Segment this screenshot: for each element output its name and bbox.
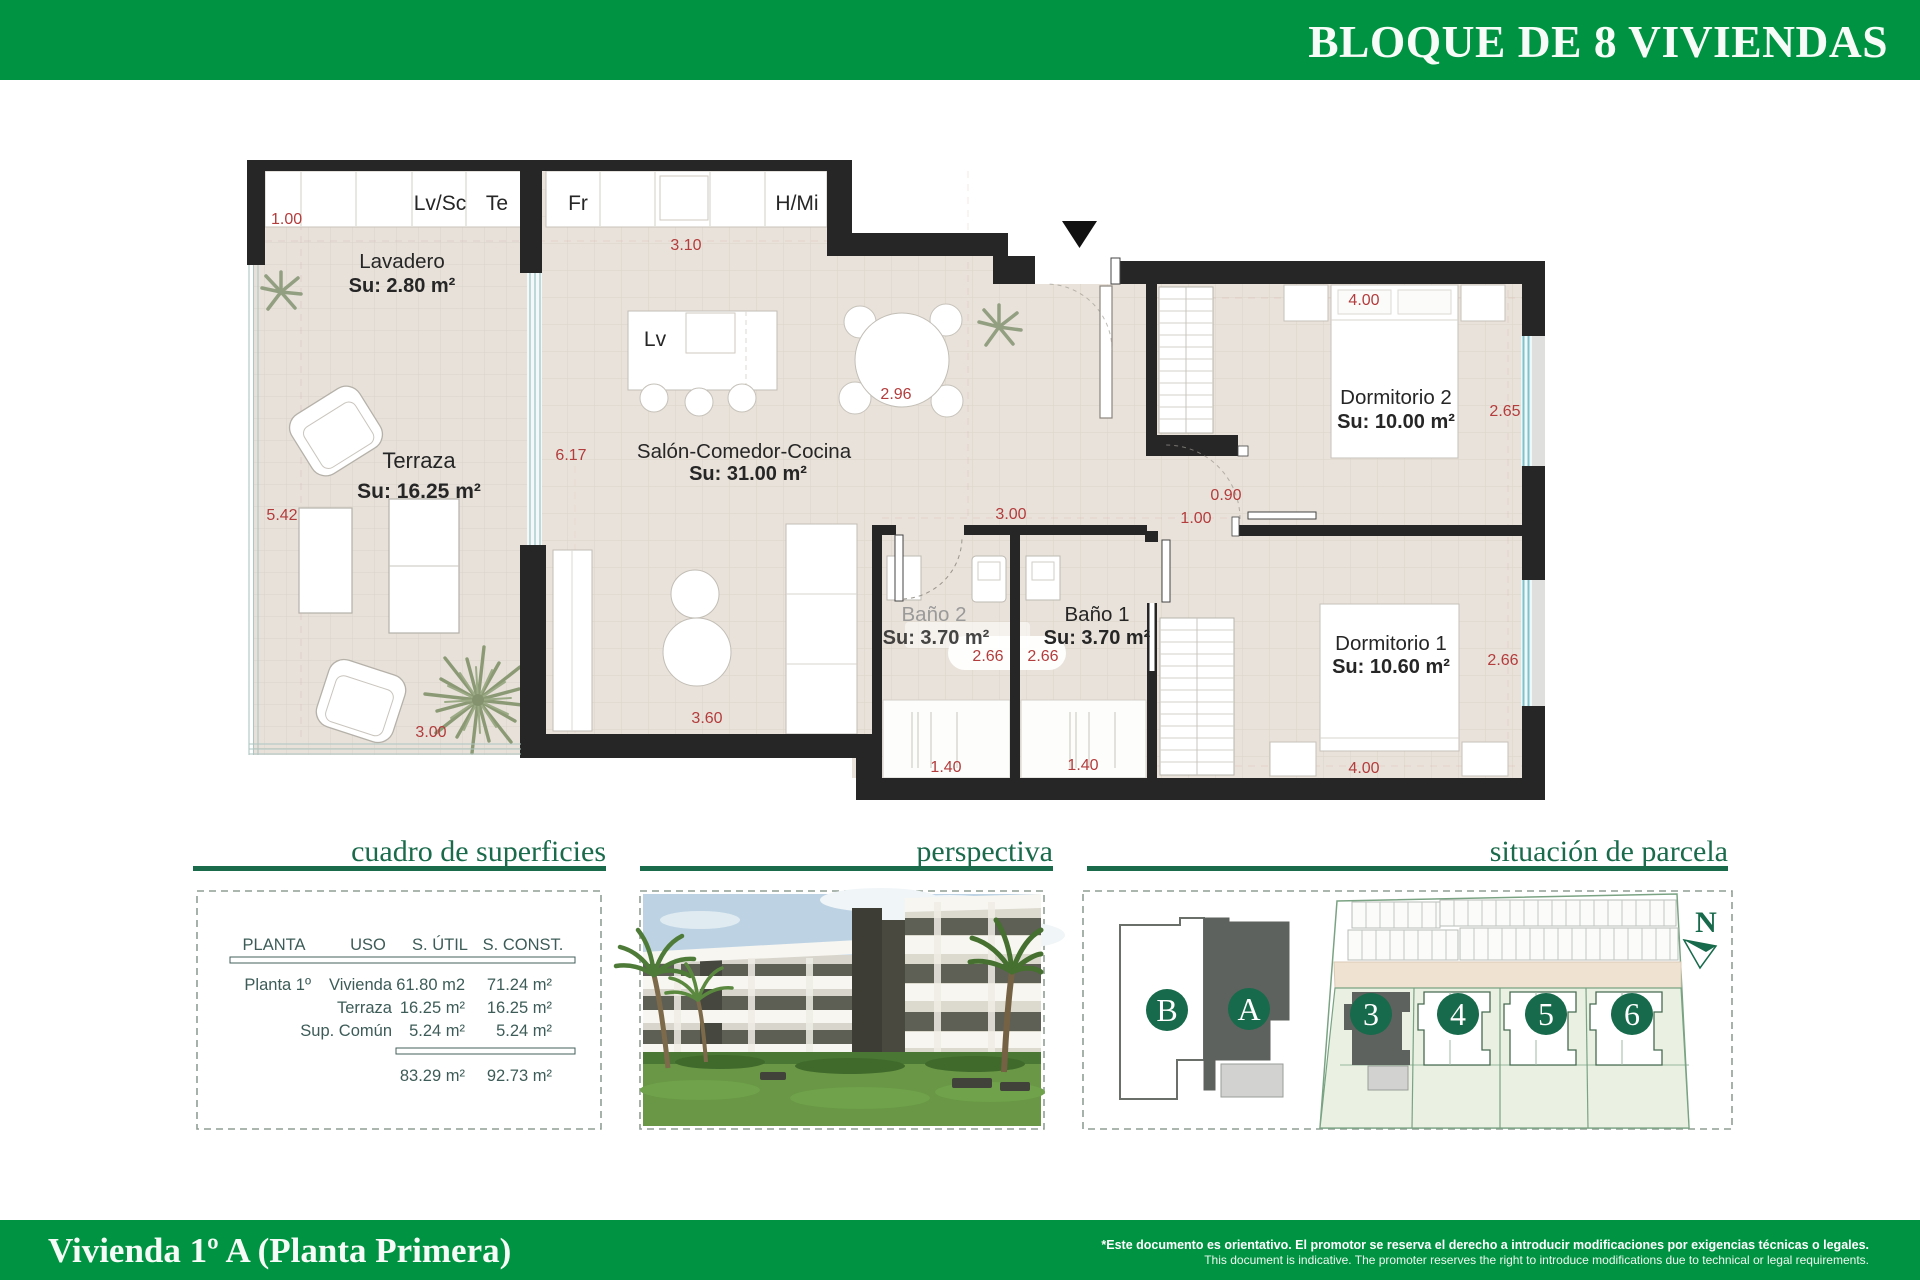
svg-text:Su: 2.80 m²: Su: 2.80 m² [349,275,456,297]
svg-text:2.96: 2.96 [880,386,911,403]
svg-text:1.40: 1.40 [1067,757,1098,774]
svg-text:USO: USO [350,936,386,954]
svg-text:71.24 m²: 71.24 m² [487,976,553,994]
svg-text:H/Mi: H/Mi [775,192,818,215]
svg-text:perspectiva: perspectiva [916,835,1053,868]
svg-text:S. CONST.: S. CONST. [483,936,564,954]
svg-text:Planta 1º: Planta 1º [244,976,311,994]
svg-text:6: 6 [1624,996,1640,1032]
svg-text:61.80 m2: 61.80 m2 [396,976,465,994]
svg-text:4.00: 4.00 [1348,760,1379,777]
svg-text:Dormitorio 2: Dormitorio 2 [1340,386,1452,409]
svg-text:Terraza: Terraza [382,448,456,473]
svg-text:Su: 31.00 m²: Su: 31.00 m² [689,463,807,485]
svg-text:5.24 m²: 5.24 m² [496,1022,552,1040]
svg-text:Baño 2: Baño 2 [902,603,967,626]
svg-text:1.00: 1.00 [1180,510,1211,527]
svg-text:Dormitorio 1: Dormitorio 1 [1335,632,1447,655]
svg-text:B: B [1156,992,1177,1028]
svg-text:Vivienda 1º A (Planta Primera): Vivienda 1º A (Planta Primera) [48,1231,511,1270]
svg-text:S. ÚTIL: S. ÚTIL [412,935,468,954]
svg-text:Sup. Común: Sup. Común [300,1022,392,1040]
svg-text:situación de parcela: situación de parcela [1490,835,1728,868]
svg-text:3: 3 [1363,996,1379,1032]
svg-text:cuadro de superficies: cuadro de superficies [351,835,606,868]
svg-text:Su: 16.25 m²: Su: 16.25 m² [357,480,481,503]
svg-text:1.40: 1.40 [930,759,961,776]
svg-text:This document is indicative. T: This document is indicative. The promote… [1204,1253,1869,1267]
svg-text:Su: 10.60 m²: Su: 10.60 m² [1332,656,1450,678]
svg-text:Fr: Fr [568,192,588,215]
svg-text:6.17: 6.17 [555,447,586,464]
svg-text:Lavadero: Lavadero [359,250,444,273]
svg-text:3.60: 3.60 [691,710,722,727]
svg-text:Te: Te [486,192,508,215]
svg-text:N: N [1695,906,1717,939]
svg-text:Su: 3.70 m²: Su: 3.70 m² [1044,627,1151,649]
svg-text:4.00: 4.00 [1348,292,1379,309]
svg-text:2.66: 2.66 [1487,652,1518,669]
svg-text:5.42: 5.42 [266,507,297,524]
svg-text:1.00: 1.00 [271,211,302,228]
svg-text:Baño 1: Baño 1 [1065,603,1130,626]
svg-text:3.00: 3.00 [995,506,1026,523]
svg-text:0.90: 0.90 [1210,487,1241,504]
svg-text:Lv: Lv [644,328,667,351]
svg-text:PLANTA: PLANTA [243,936,306,954]
svg-text:Su: 10.00 m²: Su: 10.00 m² [1337,411,1455,433]
svg-text:2.65: 2.65 [1489,403,1520,420]
svg-text:3.00: 3.00 [415,724,446,741]
svg-text:Salón-Comedor-Cocina: Salón-Comedor-Cocina [637,440,852,463]
svg-text:A: A [1237,991,1260,1027]
svg-text:Lv/Sc: Lv/Sc [414,192,467,215]
svg-text:2.66: 2.66 [972,648,1003,665]
svg-text:Su: 3.70 m²: Su: 3.70 m² [883,627,990,649]
svg-text:83.29 m²: 83.29 m² [400,1067,466,1085]
svg-text:4: 4 [1450,996,1466,1032]
svg-text:5: 5 [1538,996,1554,1032]
svg-text:16.25 m²: 16.25 m² [400,999,466,1017]
svg-text:3.10: 3.10 [670,237,701,254]
svg-text:BLOQUE DE 8 VIVIENDAS: BLOQUE DE 8 VIVIENDAS [1308,16,1888,67]
svg-text:5.24 m²: 5.24 m² [409,1022,465,1040]
svg-text:Vivienda: Vivienda [329,976,393,994]
svg-text:92.73 m²: 92.73 m² [487,1067,553,1085]
svg-text:Terraza: Terraza [337,999,393,1017]
svg-text:16.25 m²: 16.25 m² [487,999,553,1017]
svg-text:2.66: 2.66 [1027,648,1058,665]
svg-text:*Este documento es orientativo: *Este documento es orientativo. El promo… [1101,1238,1869,1252]
